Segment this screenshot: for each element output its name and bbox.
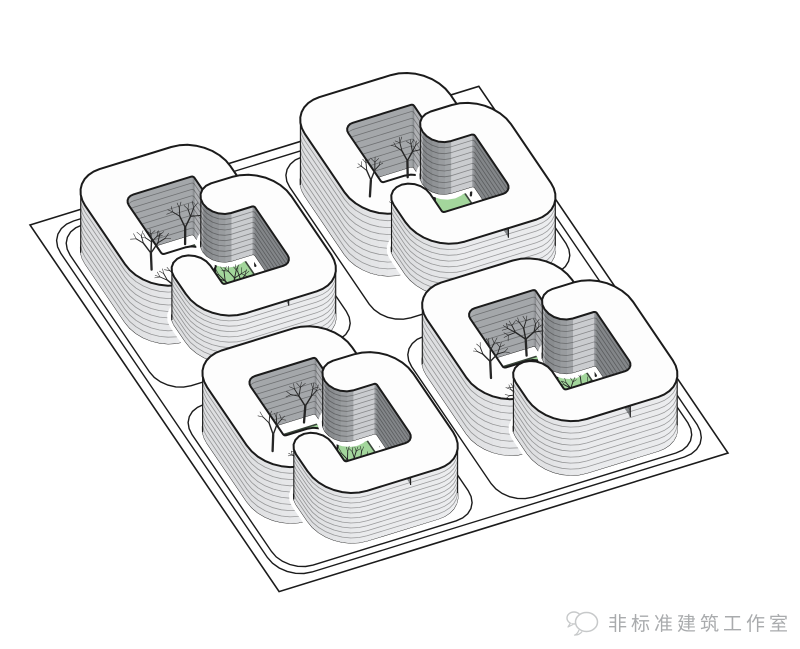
architecture-diagram-page: 非标准建筑工作室: [0, 0, 800, 649]
axonometric-diagram: [0, 0, 800, 649]
studio-logo-icon: [565, 607, 601, 637]
studio-name: 非标准建筑工作室: [608, 609, 792, 636]
studio-watermark: 非标准建筑工作室: [565, 607, 792, 637]
